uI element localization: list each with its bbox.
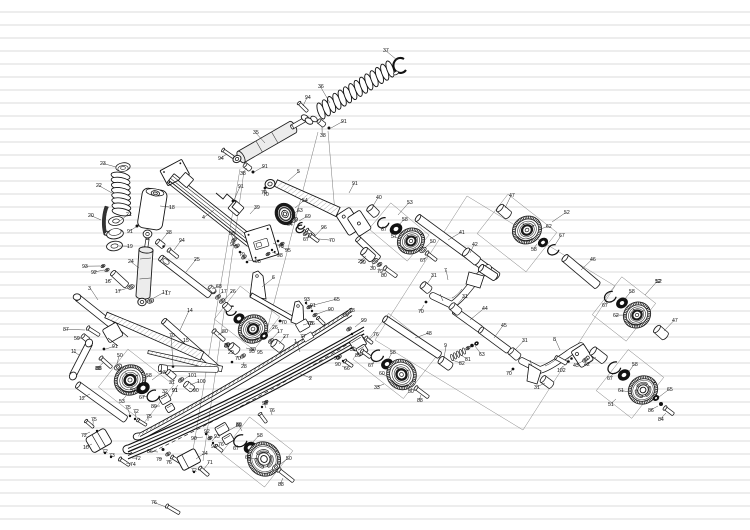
- svg-text:54: 54: [302, 198, 308, 204]
- svg-text:93: 93: [82, 264, 88, 270]
- svg-text:30: 30: [224, 343, 230, 349]
- svg-text:67: 67: [233, 446, 239, 452]
- svg-text:75: 75: [91, 417, 97, 423]
- svg-text:75: 75: [146, 414, 152, 420]
- svg-text:90: 90: [335, 362, 341, 368]
- svg-text:77: 77: [300, 334, 306, 340]
- svg-text:58: 58: [390, 350, 396, 356]
- svg-text:25: 25: [194, 257, 200, 263]
- svg-text:91: 91: [112, 344, 118, 350]
- svg-text:91: 91: [341, 119, 347, 125]
- svg-text:30: 30: [370, 266, 376, 272]
- svg-text:42: 42: [472, 242, 478, 248]
- svg-text:91: 91: [262, 164, 268, 170]
- svg-text:88: 88: [278, 482, 284, 488]
- svg-text:58: 58: [402, 217, 408, 223]
- svg-text:81: 81: [465, 357, 471, 363]
- svg-text:93: 93: [262, 401, 268, 407]
- svg-text:86: 86: [147, 449, 153, 455]
- svg-text:28: 28: [349, 308, 355, 314]
- svg-text:50: 50: [408, 389, 414, 395]
- svg-text:73: 73: [109, 453, 115, 459]
- svg-text:79: 79: [239, 252, 245, 258]
- svg-text:20: 20: [88, 213, 94, 219]
- svg-text:29: 29: [228, 350, 234, 356]
- svg-text:50: 50: [117, 353, 123, 359]
- svg-text:94: 94: [218, 156, 224, 162]
- svg-text:33: 33: [374, 385, 380, 391]
- svg-text:17: 17: [115, 289, 121, 295]
- svg-text:32: 32: [162, 389, 168, 395]
- svg-text:13: 13: [160, 370, 166, 376]
- svg-text:70: 70: [281, 320, 287, 326]
- svg-text:6: 6: [272, 275, 275, 281]
- svg-text:66: 66: [344, 366, 350, 372]
- svg-text:76: 76: [151, 500, 157, 506]
- svg-text:82: 82: [459, 361, 465, 367]
- svg-text:70: 70: [418, 309, 424, 315]
- svg-text:93: 93: [304, 297, 310, 303]
- svg-text:93: 93: [214, 434, 220, 440]
- svg-text:67: 67: [368, 363, 374, 369]
- svg-text:101: 101: [188, 373, 197, 379]
- svg-text:99: 99: [361, 318, 367, 324]
- svg-text:98: 98: [255, 259, 261, 265]
- svg-text:91: 91: [238, 184, 244, 190]
- svg-text:9: 9: [444, 343, 447, 349]
- svg-text:70: 70: [506, 371, 512, 377]
- svg-text:90: 90: [191, 436, 197, 442]
- svg-text:62: 62: [546, 224, 552, 230]
- svg-text:18: 18: [169, 205, 175, 211]
- svg-text:91: 91: [352, 181, 358, 187]
- svg-text:37: 37: [383, 48, 389, 54]
- svg-text:15: 15: [183, 338, 189, 344]
- svg-text:1: 1: [294, 339, 297, 345]
- svg-text:76: 76: [218, 442, 224, 448]
- svg-text:102: 102: [557, 368, 566, 374]
- svg-text:31: 31: [431, 273, 437, 279]
- svg-text:11: 11: [71, 349, 76, 355]
- svg-text:27: 27: [283, 334, 289, 340]
- svg-text:19: 19: [127, 244, 133, 250]
- svg-text:89: 89: [236, 423, 242, 429]
- svg-text:58: 58: [629, 289, 635, 295]
- svg-text:58: 58: [531, 247, 537, 253]
- svg-text:62: 62: [613, 313, 619, 319]
- svg-text:67: 67: [139, 395, 145, 401]
- svg-text:67: 67: [381, 227, 387, 233]
- svg-text:17: 17: [221, 289, 227, 295]
- svg-text:22: 22: [96, 183, 102, 189]
- svg-text:75: 75: [125, 405, 131, 411]
- svg-text:72: 72: [102, 449, 108, 455]
- svg-text:76: 76: [373, 332, 379, 338]
- svg-text:21: 21: [126, 212, 132, 218]
- svg-text:10: 10: [83, 445, 89, 451]
- svg-text:38: 38: [166, 230, 172, 236]
- svg-text:91: 91: [310, 303, 316, 309]
- svg-text:61: 61: [618, 388, 624, 394]
- svg-text:79: 79: [156, 457, 162, 463]
- svg-text:50: 50: [286, 456, 292, 462]
- svg-text:95: 95: [230, 242, 236, 248]
- svg-text:70: 70: [263, 192, 269, 198]
- svg-text:58: 58: [632, 362, 638, 368]
- svg-text:31: 31: [522, 338, 528, 344]
- svg-text:67: 67: [559, 233, 565, 239]
- svg-text:89: 89: [355, 353, 361, 359]
- svg-text:67: 67: [607, 376, 613, 382]
- svg-text:45: 45: [501, 323, 507, 329]
- svg-text:72: 72: [135, 456, 141, 462]
- svg-text:80: 80: [222, 329, 228, 335]
- svg-text:64: 64: [287, 222, 293, 228]
- svg-text:63: 63: [479, 352, 485, 358]
- svg-text:87: 87: [63, 327, 69, 333]
- svg-text:3: 3: [88, 286, 91, 292]
- svg-text:30: 30: [250, 347, 256, 353]
- svg-text:24: 24: [128, 259, 134, 265]
- svg-text:88: 88: [96, 366, 102, 372]
- svg-text:36: 36: [318, 84, 324, 90]
- svg-text:92: 92: [204, 429, 210, 435]
- svg-text:74: 74: [130, 462, 136, 468]
- svg-text:17: 17: [165, 291, 171, 297]
- svg-text:26: 26: [230, 289, 236, 295]
- svg-text:38: 38: [240, 171, 246, 177]
- svg-text:17: 17: [277, 329, 283, 335]
- svg-text:95: 95: [285, 248, 291, 254]
- svg-text:39: 39: [254, 205, 260, 211]
- svg-text:35: 35: [253, 130, 259, 136]
- svg-text:31: 31: [462, 294, 468, 300]
- svg-text:60: 60: [245, 455, 251, 461]
- svg-text:70: 70: [169, 333, 175, 339]
- svg-text:86: 86: [648, 408, 654, 414]
- svg-text:4: 4: [202, 215, 205, 221]
- svg-text:67: 67: [420, 258, 426, 264]
- svg-text:58: 58: [257, 433, 263, 439]
- svg-text:53: 53: [119, 399, 125, 405]
- svg-text:47: 47: [509, 193, 515, 199]
- svg-text:51: 51: [608, 402, 614, 408]
- svg-text:50: 50: [430, 239, 436, 245]
- svg-text:80: 80: [381, 273, 387, 279]
- svg-text:91: 91: [172, 388, 178, 394]
- svg-text:2: 2: [309, 376, 312, 382]
- svg-text:31: 31: [534, 385, 540, 391]
- svg-text:41: 41: [459, 230, 465, 236]
- svg-text:65: 65: [334, 297, 340, 303]
- svg-text:95: 95: [257, 350, 263, 356]
- svg-text:98: 98: [229, 231, 235, 237]
- svg-text:34: 34: [202, 451, 208, 457]
- svg-text:58: 58: [146, 373, 152, 379]
- svg-text:31: 31: [169, 380, 175, 386]
- svg-text:71: 71: [207, 460, 213, 466]
- svg-text:44: 44: [482, 306, 488, 312]
- svg-text:72: 72: [191, 468, 197, 474]
- svg-text:70: 70: [235, 356, 241, 362]
- svg-text:28: 28: [241, 364, 247, 370]
- svg-text:42: 42: [584, 362, 590, 368]
- svg-text:38: 38: [320, 133, 326, 139]
- svg-text:76: 76: [269, 408, 275, 414]
- svg-text:90: 90: [193, 388, 199, 394]
- svg-text:69: 69: [305, 214, 311, 220]
- svg-text:89: 89: [151, 404, 157, 410]
- svg-text:7: 7: [444, 268, 447, 274]
- svg-text:84: 84: [658, 417, 664, 423]
- svg-text:91: 91: [127, 229, 133, 235]
- svg-text:72: 72: [81, 433, 87, 439]
- svg-text:8: 8: [553, 337, 556, 343]
- svg-text:59: 59: [74, 336, 80, 342]
- svg-text:92: 92: [91, 270, 97, 276]
- svg-text:88: 88: [417, 398, 423, 404]
- svg-text:14: 14: [187, 308, 193, 314]
- svg-text:67: 67: [602, 303, 608, 309]
- svg-text:76: 76: [166, 460, 172, 466]
- svg-text:79: 79: [278, 244, 284, 250]
- svg-text:91: 91: [211, 444, 217, 450]
- svg-text:90: 90: [328, 307, 334, 313]
- svg-text:70: 70: [329, 238, 335, 244]
- svg-text:63: 63: [297, 208, 303, 214]
- svg-text:100: 100: [197, 379, 206, 385]
- svg-text:29: 29: [360, 260, 366, 266]
- svg-text:96: 96: [321, 225, 327, 231]
- svg-text:12: 12: [79, 396, 85, 402]
- svg-text:57: 57: [130, 388, 136, 394]
- svg-text:57: 57: [391, 234, 397, 240]
- svg-text:52: 52: [564, 210, 570, 216]
- svg-text:72: 72: [133, 409, 139, 415]
- svg-text:48: 48: [426, 331, 432, 337]
- svg-text:53: 53: [407, 200, 413, 206]
- svg-text:76: 76: [309, 321, 315, 327]
- svg-text:60: 60: [379, 371, 385, 377]
- svg-text:43: 43: [573, 363, 579, 369]
- svg-text:94: 94: [305, 95, 311, 101]
- svg-text:5: 5: [297, 169, 300, 175]
- svg-text:23: 23: [100, 161, 106, 167]
- svg-text:94: 94: [179, 238, 185, 244]
- svg-text:46: 46: [590, 257, 596, 263]
- svg-text:16: 16: [105, 279, 111, 285]
- svg-text:65: 65: [667, 387, 673, 393]
- svg-text:52: 52: [656, 279, 662, 285]
- svg-text:47: 47: [672, 318, 678, 324]
- svg-text:40: 40: [376, 195, 382, 201]
- svg-text:32: 32: [350, 347, 356, 353]
- svg-text:98: 98: [277, 253, 283, 259]
- svg-text:67: 67: [303, 237, 309, 243]
